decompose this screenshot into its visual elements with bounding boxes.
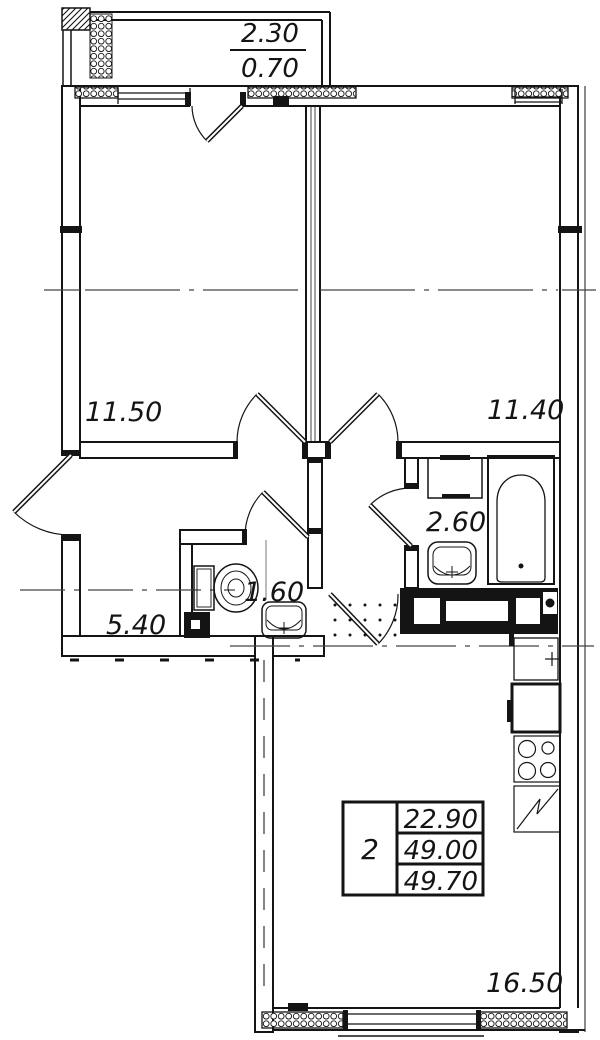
- fridge: [514, 786, 560, 832]
- washing-machine: [428, 455, 482, 498]
- room-left-door: [237, 394, 305, 442]
- room-left-area: 11.50: [85, 397, 162, 428]
- bathtub: [488, 456, 554, 584]
- balcony-door: [192, 106, 242, 141]
- room-right-door: [330, 394, 398, 442]
- vent-shaft: [184, 612, 210, 638]
- balcony-area-lower: 0.70: [241, 54, 299, 84]
- kitchen-door: [328, 592, 398, 644]
- kitchen-sink: [509, 634, 559, 680]
- wc-door: [245, 492, 308, 537]
- kitchen-counter: [507, 684, 560, 732]
- bathroom-door: [370, 488, 411, 546]
- stamp-table: 2 22.90 49.00 49.70: [343, 802, 483, 897]
- kitchen-living-area: 16.50: [486, 968, 563, 999]
- stamp-total-area: 49.70: [404, 867, 478, 897]
- floor-plan: 2.30 0.70 11.50 11.40 2.60 1.60 5.40 16.…: [0, 0, 600, 1040]
- hallway-area: 5.40: [106, 610, 166, 641]
- wc-area: 1.60: [244, 577, 304, 608]
- stamp-living-area: 22.90: [404, 805, 478, 835]
- stamp-rooms-count: 2: [361, 833, 379, 866]
- bathroom-area: 2.60: [426, 507, 486, 538]
- vent-block: [400, 588, 558, 634]
- balcony-area-upper: 2.30: [241, 19, 299, 49]
- room-labels: 2.30 0.70 11.50 11.40 2.60 1.60 5.40 16.…: [85, 19, 564, 999]
- bathroom-sink: [428, 542, 476, 584]
- stamp-floor-area: 49.00: [404, 836, 478, 866]
- stove: [514, 736, 560, 782]
- room-right-area: 11.40: [487, 395, 564, 426]
- entrance-door: [14, 455, 71, 535]
- kitchen-fixtures: [507, 634, 560, 832]
- walls: [62, 86, 585, 1036]
